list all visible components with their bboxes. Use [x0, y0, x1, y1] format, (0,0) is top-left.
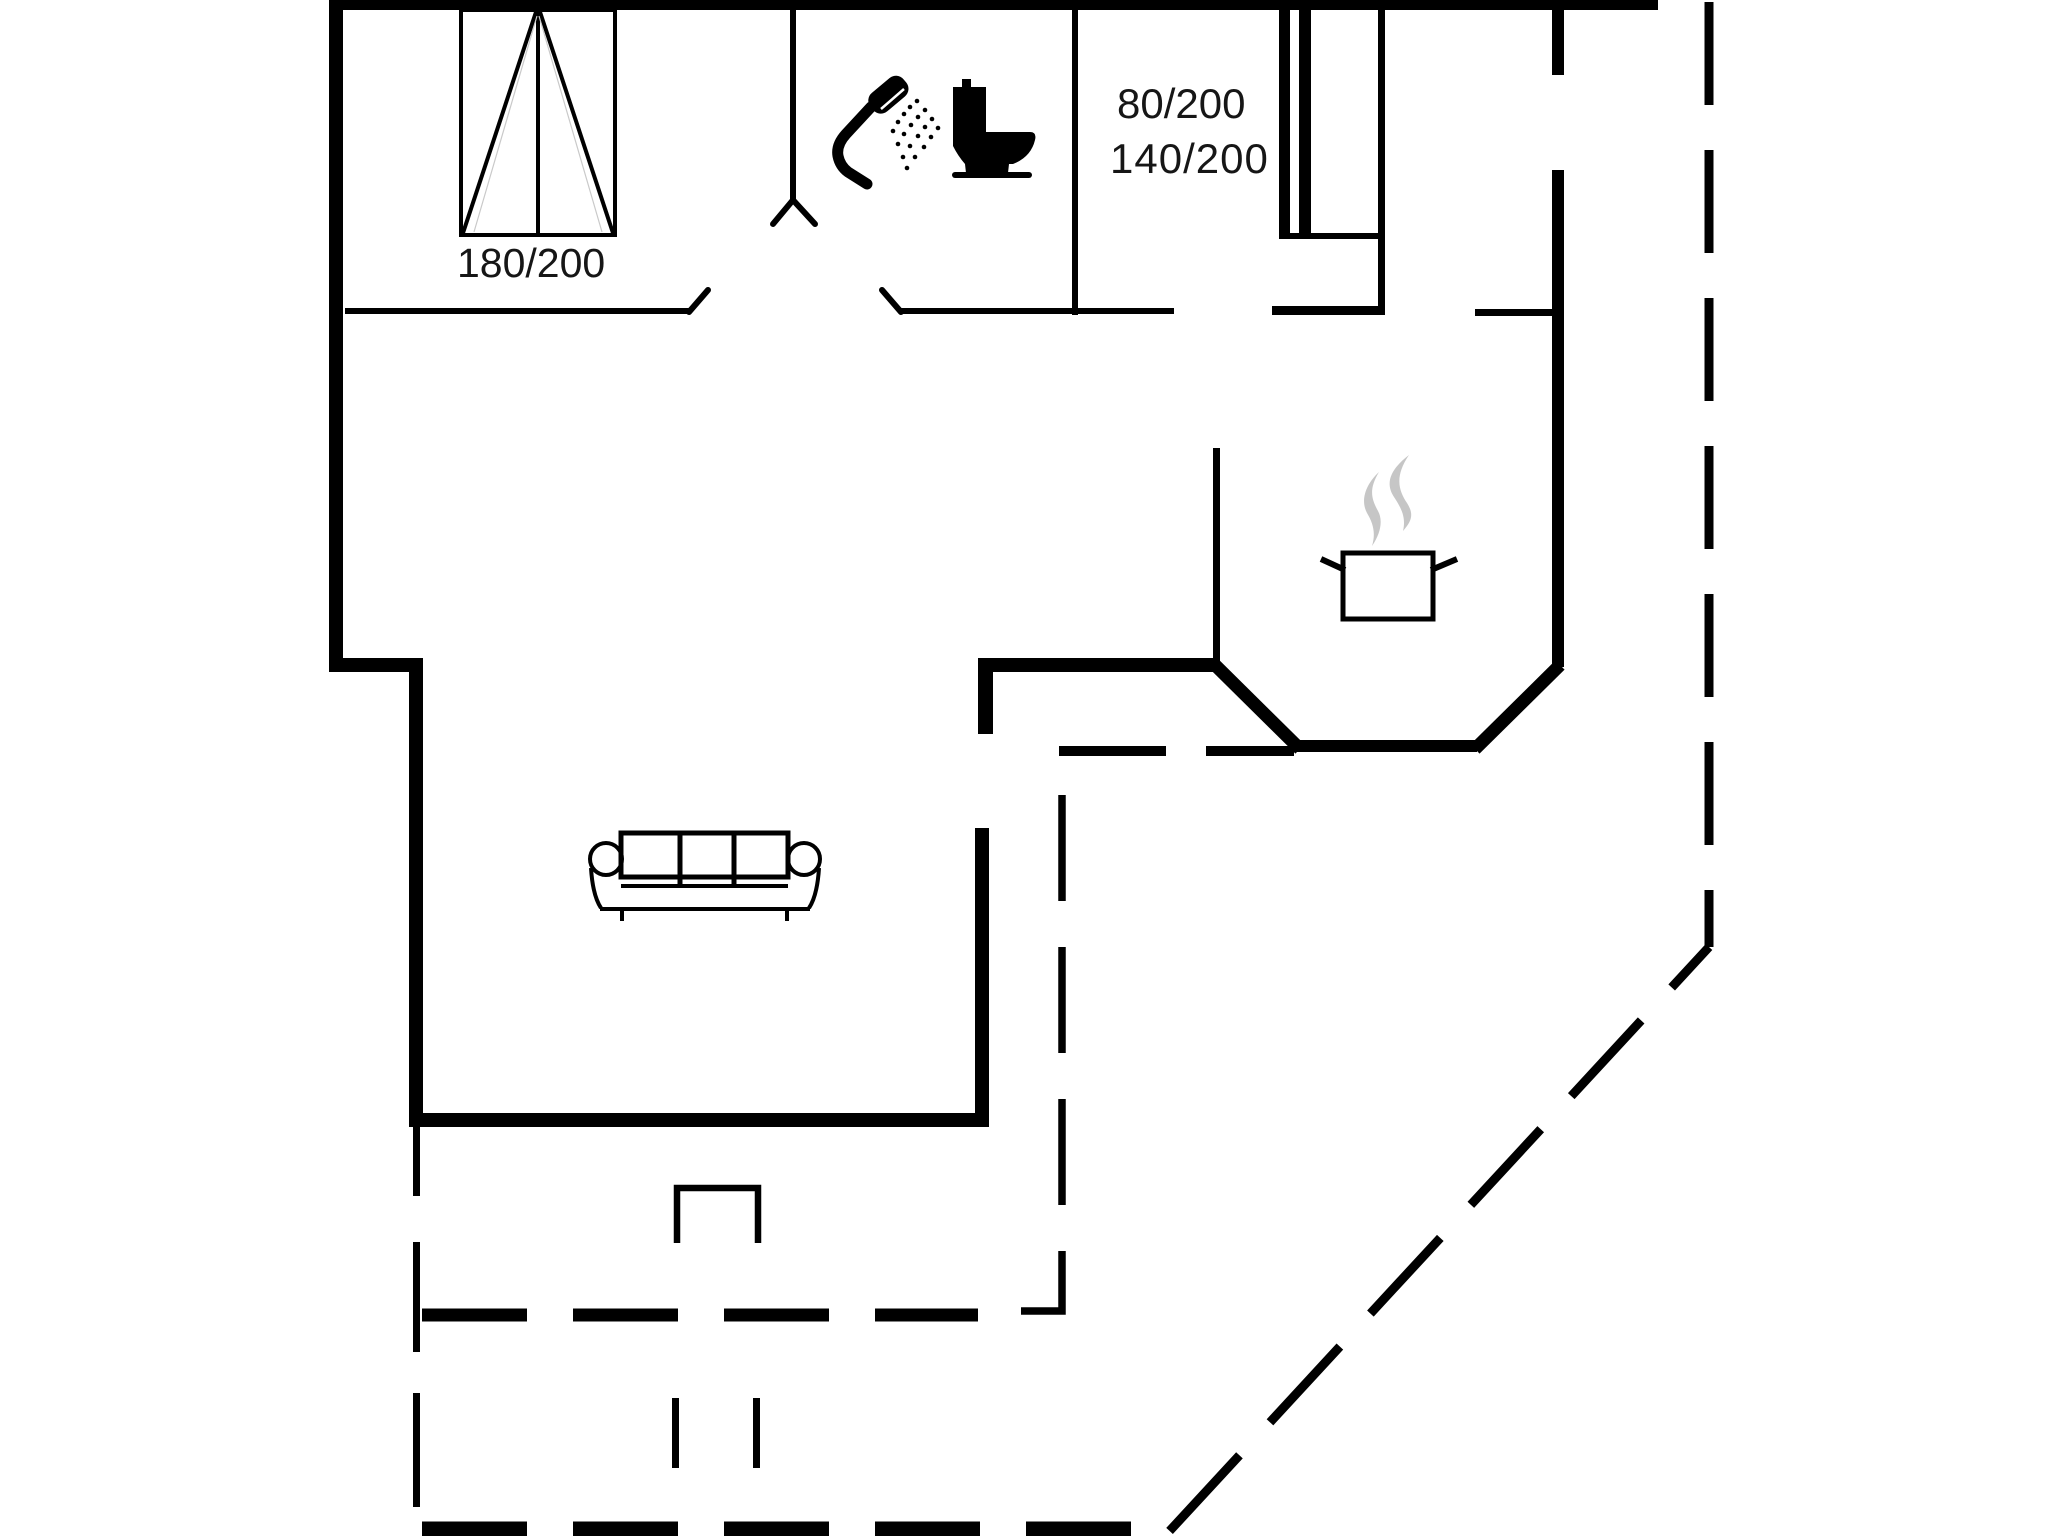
svg-text:80/200: 80/200 [1117, 80, 1245, 127]
svg-text:140/200: 140/200 [1110, 135, 1269, 182]
svg-text:180/200: 180/200 [457, 240, 605, 286]
